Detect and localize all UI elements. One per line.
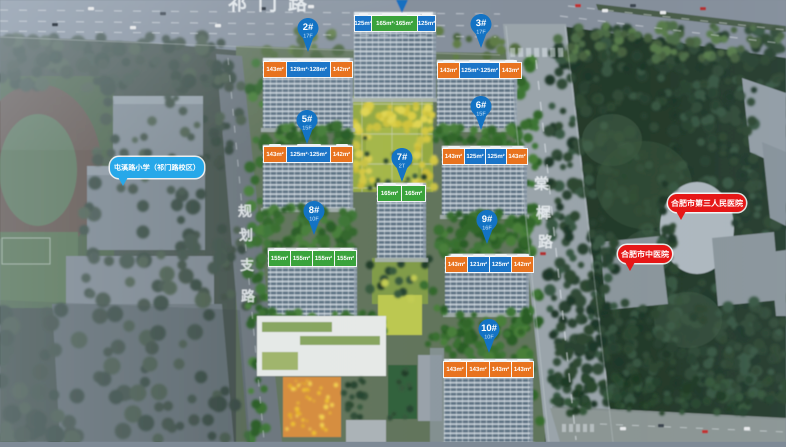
svg-text:10F: 10F <box>309 217 319 223</box>
svg-text:支: 支 <box>239 257 255 273</box>
svg-text:17F: 17F <box>476 30 486 36</box>
svg-text:路: 路 <box>288 0 308 15</box>
svg-text:划: 划 <box>239 227 253 243</box>
svg-text:规: 规 <box>238 203 252 219</box>
svg-text:樨: 樨 <box>536 205 551 222</box>
svg-text:9#: 9# <box>482 214 493 225</box>
svg-text:路: 路 <box>538 234 554 251</box>
svg-text:15F: 15F <box>476 112 486 118</box>
svg-text:7#: 7# <box>397 152 408 163</box>
svg-text:路: 路 <box>241 288 256 304</box>
svg-text:10#: 10# <box>481 323 498 334</box>
svg-text:6#: 6# <box>476 100 487 111</box>
svg-text:5#: 5# <box>302 114 313 125</box>
svg-text:2#: 2# <box>303 22 314 33</box>
svg-text:祁: 祁 <box>228 0 247 15</box>
svg-text:15F: 15F <box>302 126 312 132</box>
svg-text:17F: 17F <box>303 34 313 40</box>
svg-text:3#: 3# <box>476 18 487 29</box>
svg-text:10F: 10F <box>484 335 494 341</box>
svg-text:8#: 8# <box>309 205 320 216</box>
svg-text:门: 门 <box>258 0 277 15</box>
svg-text:2T: 2T <box>399 164 406 170</box>
svg-text:棠: 棠 <box>533 176 550 193</box>
svg-text:16F: 16F <box>482 226 492 232</box>
